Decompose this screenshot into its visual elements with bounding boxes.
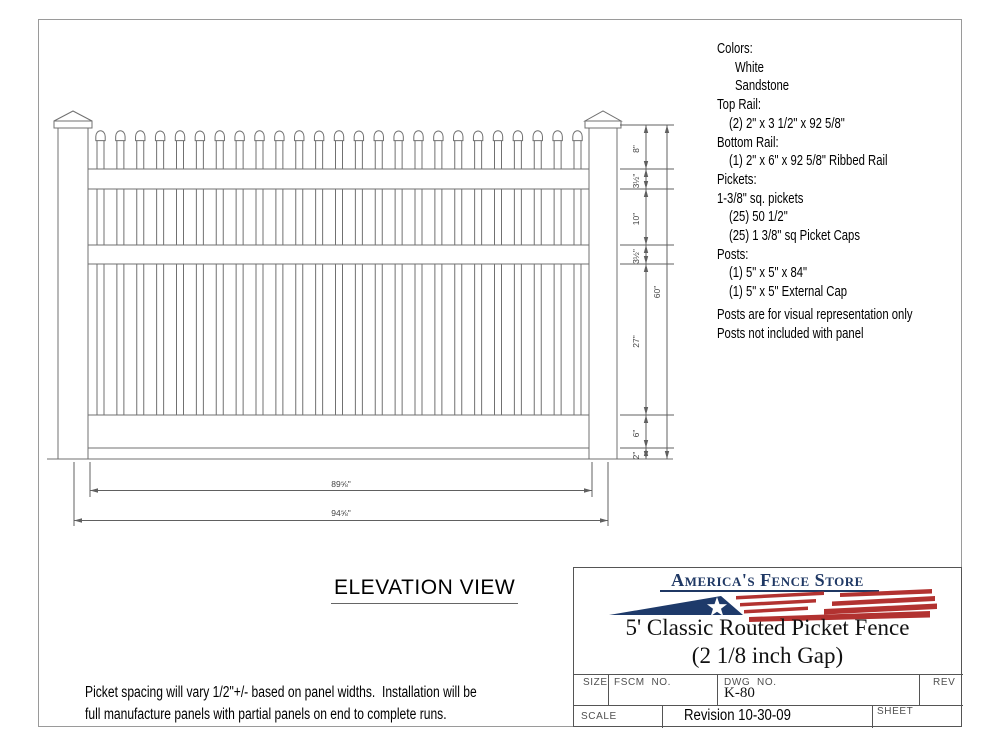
spec-line-text: Posts not included with panel: [717, 326, 864, 343]
picket-cap: [493, 131, 502, 141]
picket-cap: [295, 131, 304, 141]
picket-cap: [96, 131, 105, 141]
grid-line: [608, 674, 609, 705]
spec-line-text: Top Rail:: [717, 97, 761, 114]
picket-cap: [374, 131, 383, 141]
picket-cap: [553, 131, 562, 141]
picket-cap: [155, 131, 164, 141]
picket-cap: [255, 131, 264, 141]
picket-cap: [513, 131, 522, 141]
spec-line: Bottom Rail:: [717, 135, 796, 152]
picket-cap: [195, 131, 204, 141]
spec-line: Posts:: [717, 247, 757, 264]
product-title: 5' Classic Routed Picket Fence: [574, 615, 961, 641]
dimension-label: 89⅝": [331, 479, 351, 489]
dwg-number: K-80: [724, 685, 755, 702]
picket-cap: [454, 131, 463, 141]
picket-cap: [314, 131, 323, 141]
size-label: SIZE: [583, 677, 608, 688]
spec-line-text: (25) 50 1/2": [729, 209, 788, 226]
spec-line: Posts not included with panel: [717, 326, 905, 343]
flag-stripe: [736, 592, 824, 600]
dimension-label: 27": [631, 335, 641, 347]
spec-line-text: (25) 1 3/8" sq Picket Caps: [729, 228, 860, 245]
revision-text: Revision 10-30-09: [684, 707, 791, 725]
dimension-lines: 8"3½"10"3½"27"6"2"60": [620, 125, 674, 459]
picket-cap: [235, 131, 244, 141]
fscm-label: FSCM NO.: [614, 677, 671, 688]
spec-line-text: White: [735, 60, 764, 77]
width-dimensions: 89⅝"94⅝": [74, 462, 608, 526]
spec-line-text: 1-3/8" sq. pickets: [717, 191, 803, 208]
sheet-label: SHEET: [877, 706, 913, 717]
flag-stripe: [744, 607, 808, 614]
spec-line: (1) 5" x 5" External Cap: [729, 284, 880, 301]
installation-note-line-2: full manufacture panels with partial pan…: [68, 688, 549, 742]
spec-line: Posts are for visual representation only: [717, 307, 968, 324]
scale-label: SCALE: [581, 711, 617, 722]
spec-line: (1) 2" x 6" x 92 5/8" Ribbed Rail: [729, 153, 932, 170]
picket-cap: [175, 131, 184, 141]
spec-line: Colors:: [717, 41, 763, 58]
picket-cap: [275, 131, 284, 141]
dimension-label: 3½": [631, 174, 641, 189]
spec-line: Top Rail:: [717, 97, 773, 114]
spec-line-text: Colors:: [717, 41, 753, 58]
flag-stripe: [840, 589, 932, 597]
spec-line: White: [735, 60, 772, 77]
product-subtitle: (2 1/8 inch Gap): [574, 643, 961, 669]
spec-line-text: (1) 5" x 5" External Cap: [729, 284, 847, 301]
picket-cap: [414, 131, 423, 141]
spec-line-text: Pickets:: [717, 172, 757, 189]
drawing-sheet: 8"3½"10"3½"27"6"2"60"89⅝"94⅝" Colors:Whi…: [0, 0, 1000, 750]
spec-line: 1-3/8" sq. pickets: [717, 191, 828, 208]
spec-line: (25) 1 3/8" sq Picket Caps: [729, 228, 897, 245]
dimension-label: 8": [631, 145, 641, 153]
grid-line: [574, 674, 963, 675]
grid-line: [919, 674, 920, 705]
spec-line: (2) 2" x 3 1/2" x 92 5/8": [729, 116, 877, 133]
picket-cap: [116, 131, 125, 141]
grid-line: [662, 705, 663, 728]
spec-line-text: (1) 2" x 6" x 92 5/8" Ribbed Rail: [729, 153, 888, 170]
spec-line-text: (2) 2" x 3 1/2" x 92 5/8": [729, 116, 845, 133]
spec-line-text: Sandstone: [735, 78, 789, 95]
spec-line: Pickets:: [717, 172, 768, 189]
rev-label: REV: [933, 677, 955, 688]
picket-cap: [354, 131, 363, 141]
spec-line: (25) 50 1/2": [729, 209, 804, 226]
dimension-label: 60": [652, 286, 662, 298]
title-block: America's Fence Store 5' Classic Routed …: [573, 567, 962, 727]
spec-line-text: Posts are for visual representation only: [717, 307, 913, 324]
picket-cap: [573, 131, 582, 141]
dimension-label: 3½": [631, 249, 641, 264]
picket-cap: [434, 131, 443, 141]
dimension-label: 94⅝": [331, 508, 351, 518]
spec-line: Sandstone: [735, 78, 804, 95]
note-text: full manufacture panels with partial pan…: [85, 706, 447, 724]
flag-stripe: [740, 599, 816, 607]
elevation-view-label: ELEVATION VIEW: [331, 576, 518, 604]
dimension-label: 2": [631, 452, 641, 460]
spec-line-text: (1) 5" x 5" x 84": [729, 265, 807, 282]
picket-cap: [533, 131, 542, 141]
grid-line: [717, 674, 718, 705]
dimension-label: 6": [631, 430, 641, 438]
picket-cap: [473, 131, 482, 141]
spec-line-text: Posts:: [717, 247, 748, 264]
grid-line: [872, 705, 873, 728]
spec-line-text: Bottom Rail:: [717, 135, 779, 152]
spec-line: (1) 5" x 5" x 84": [729, 265, 829, 282]
picket-cap: [334, 131, 343, 141]
dimension-label: 10": [631, 213, 641, 225]
brand-name: America's Fence Store: [574, 570, 961, 591]
picket-cap: [394, 131, 403, 141]
elevation-view-text: ELEVATION VIEW: [334, 576, 515, 599]
picket-cap: [215, 131, 224, 141]
picket-cap: [136, 131, 145, 141]
